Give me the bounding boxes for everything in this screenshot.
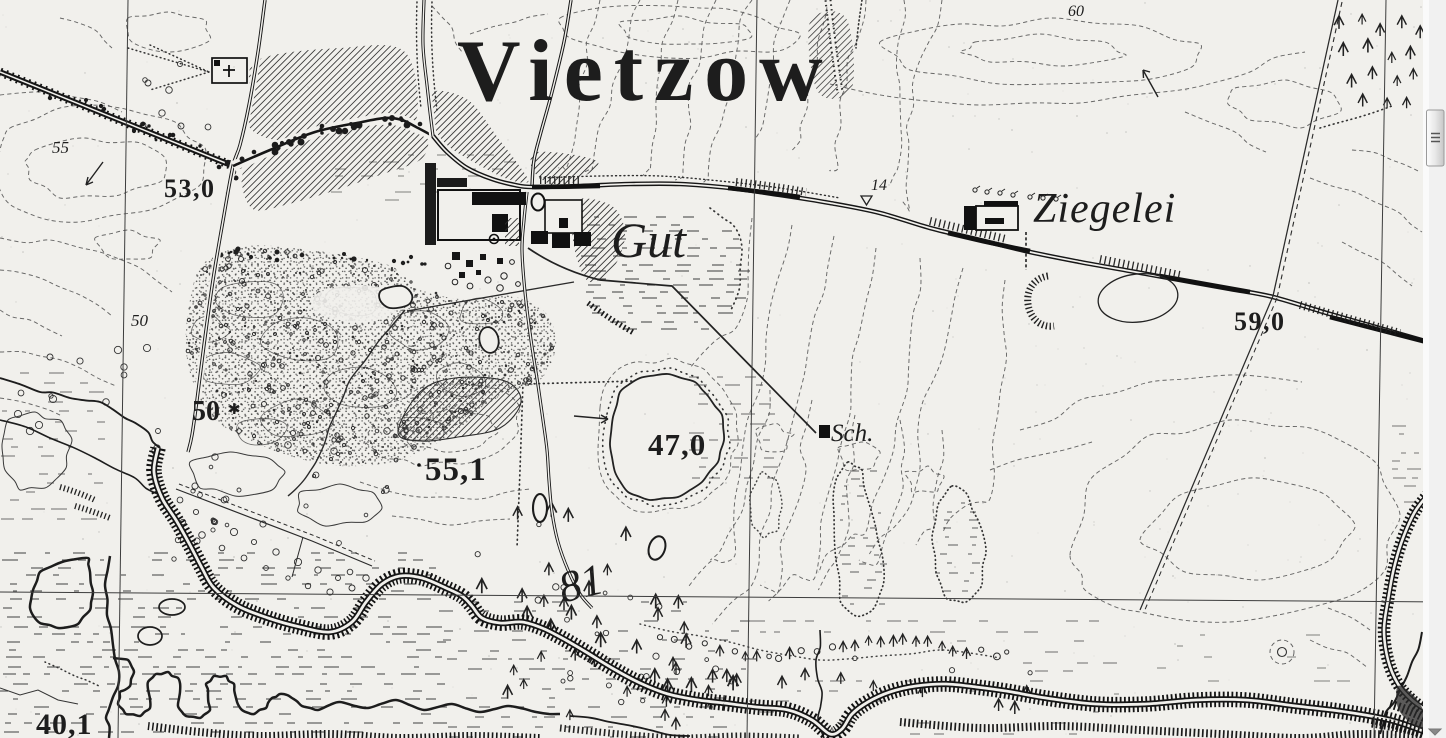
svg-text:40,1: 40,1 [36, 708, 93, 738]
svg-text:50: 50 [192, 396, 220, 427]
svg-text:47,0: 47,0 [648, 427, 706, 462]
svg-text:Sch.: Sch. [831, 420, 873, 447]
svg-text:Gut: Gut [611, 212, 687, 268]
svg-text:Ziegelei: Ziegelei [1033, 186, 1176, 232]
svg-text:Vietzow: Vietzow [457, 23, 834, 120]
svg-text:60: 60 [1068, 3, 1084, 20]
svg-text:59,0: 59,0 [1234, 307, 1286, 336]
svg-text:55: 55 [52, 138, 69, 157]
svg-text:50: 50 [131, 311, 149, 330]
svg-text:53,0: 53,0 [164, 174, 216, 203]
svg-text:✱: ✱ [228, 402, 241, 418]
svg-text:14: 14 [871, 177, 887, 194]
svg-text:55,1: 55,1 [425, 452, 487, 488]
